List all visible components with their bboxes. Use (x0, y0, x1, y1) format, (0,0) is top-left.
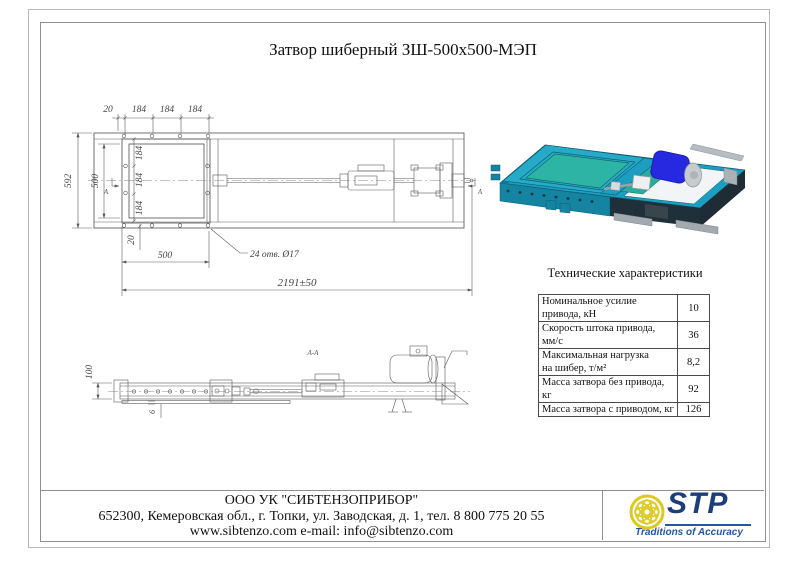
svg-text:20: 20 (127, 235, 137, 245)
table-row: Масса затвора без привода, кг 92 (539, 376, 710, 403)
side-view-drawing: А-А (70, 330, 480, 425)
stp-logo-text: STP (667, 487, 728, 521)
dim-side-height: 100 (85, 365, 112, 399)
section-letter: А (477, 188, 483, 196)
specs-panel: Технические характеристики Номинальное у… (538, 266, 712, 417)
specs-heading: Технические характеристики (538, 266, 712, 281)
spec-value: 10 (678, 295, 710, 322)
render-gearbox (632, 175, 650, 190)
table-row: Максимальная нагрузка на шибер, т/м² 8,2 (539, 349, 710, 376)
footer-text-block: ООО УК "СИБТЕНЗОПРИБОР" 652300, Кемеровс… (41, 493, 602, 540)
render-foot-tab (546, 200, 556, 210)
svg-text:592: 592 (64, 174, 74, 189)
svg-text:184: 184 (135, 173, 145, 188)
render-left-tab (491, 174, 500, 180)
render-rod-fitting (611, 182, 621, 191)
render-left-tab (491, 165, 500, 171)
render-far-rail (690, 144, 744, 161)
spec-value: 126 (678, 403, 710, 417)
dim-top-row: 20 184 184 184 (103, 105, 214, 135)
render-side-bracket (724, 168, 737, 185)
company-address: 652300, Кемеровская обл., г. Топки, ул. … (41, 509, 602, 525)
svg-text:184: 184 (160, 105, 175, 115)
drawing-sheet: Затвор шиберный ЗШ-500х500-МЭП (0, 0, 800, 566)
table-row: Номинальное усилие привода, кН 10 (539, 295, 710, 322)
side-body (114, 374, 455, 404)
svg-text:184: 184 (135, 146, 145, 161)
table-row: Масса затвора с приводом, кг 126 (539, 403, 710, 417)
stp-emblem-icon (629, 494, 665, 530)
spec-name: Номинальное усилие привода, кН (539, 295, 678, 322)
svg-text:500: 500 (158, 251, 173, 261)
svg-text:100: 100 (85, 365, 95, 380)
svg-text:500: 500 (91, 174, 101, 189)
spec-name: Максимальная нагрузка на шибер, т/м² (539, 349, 678, 376)
valve-3d-render (485, 105, 750, 250)
side-motor-assembly (388, 346, 468, 412)
spec-name: Масса затвора с приводом, кг (539, 403, 678, 417)
svg-text:20: 20 (103, 105, 113, 115)
svg-text:184: 184 (132, 105, 147, 115)
spec-name: Скорость штока привода, мм/с (539, 322, 678, 349)
table-row: Скорость штока привода, мм/с 36 (539, 322, 710, 349)
svg-text:184: 184 (135, 201, 145, 216)
stp-logo-underline (665, 524, 751, 526)
render-foot-tab (560, 203, 570, 213)
top-view-drawing: А А 20 184 184 184 592 (50, 85, 490, 300)
svg-text:6: 6 (148, 410, 157, 414)
specs-table: Номинальное усилие привода, кН 10 Скорос… (538, 294, 710, 417)
holes-note: 24 отв. Ø17 (250, 250, 300, 260)
spec-value: 36 (678, 322, 710, 349)
spec-name: Масса затвора без привода, кг (539, 376, 678, 403)
company-name: ООО УК "СИБТЕНЗОПРИБОР" (41, 493, 602, 509)
stp-logo: STP Traditions of Accuracy (603, 491, 764, 539)
svg-text:184: 184 (188, 105, 203, 115)
stp-logo-tagline: Traditions of Accuracy (621, 527, 757, 538)
total-length: 2191±50 (277, 277, 317, 289)
page-title: Затвор шиберный ЗШ-500х500-МЭП (40, 40, 766, 60)
dim-bottom: 20 500 24 отв. Ø17 2191±50 (122, 186, 472, 296)
dim-inner-vertical: 184 184 184 (133, 138, 146, 223)
render-drum-hub (690, 171, 698, 179)
company-web: www.sibtenzo.com e-mail: info@sibtenzo.c… (41, 524, 602, 540)
spec-value: 92 (678, 376, 710, 403)
spec-value: 8,2 (678, 349, 710, 376)
section-view-label: А-А (307, 349, 320, 357)
